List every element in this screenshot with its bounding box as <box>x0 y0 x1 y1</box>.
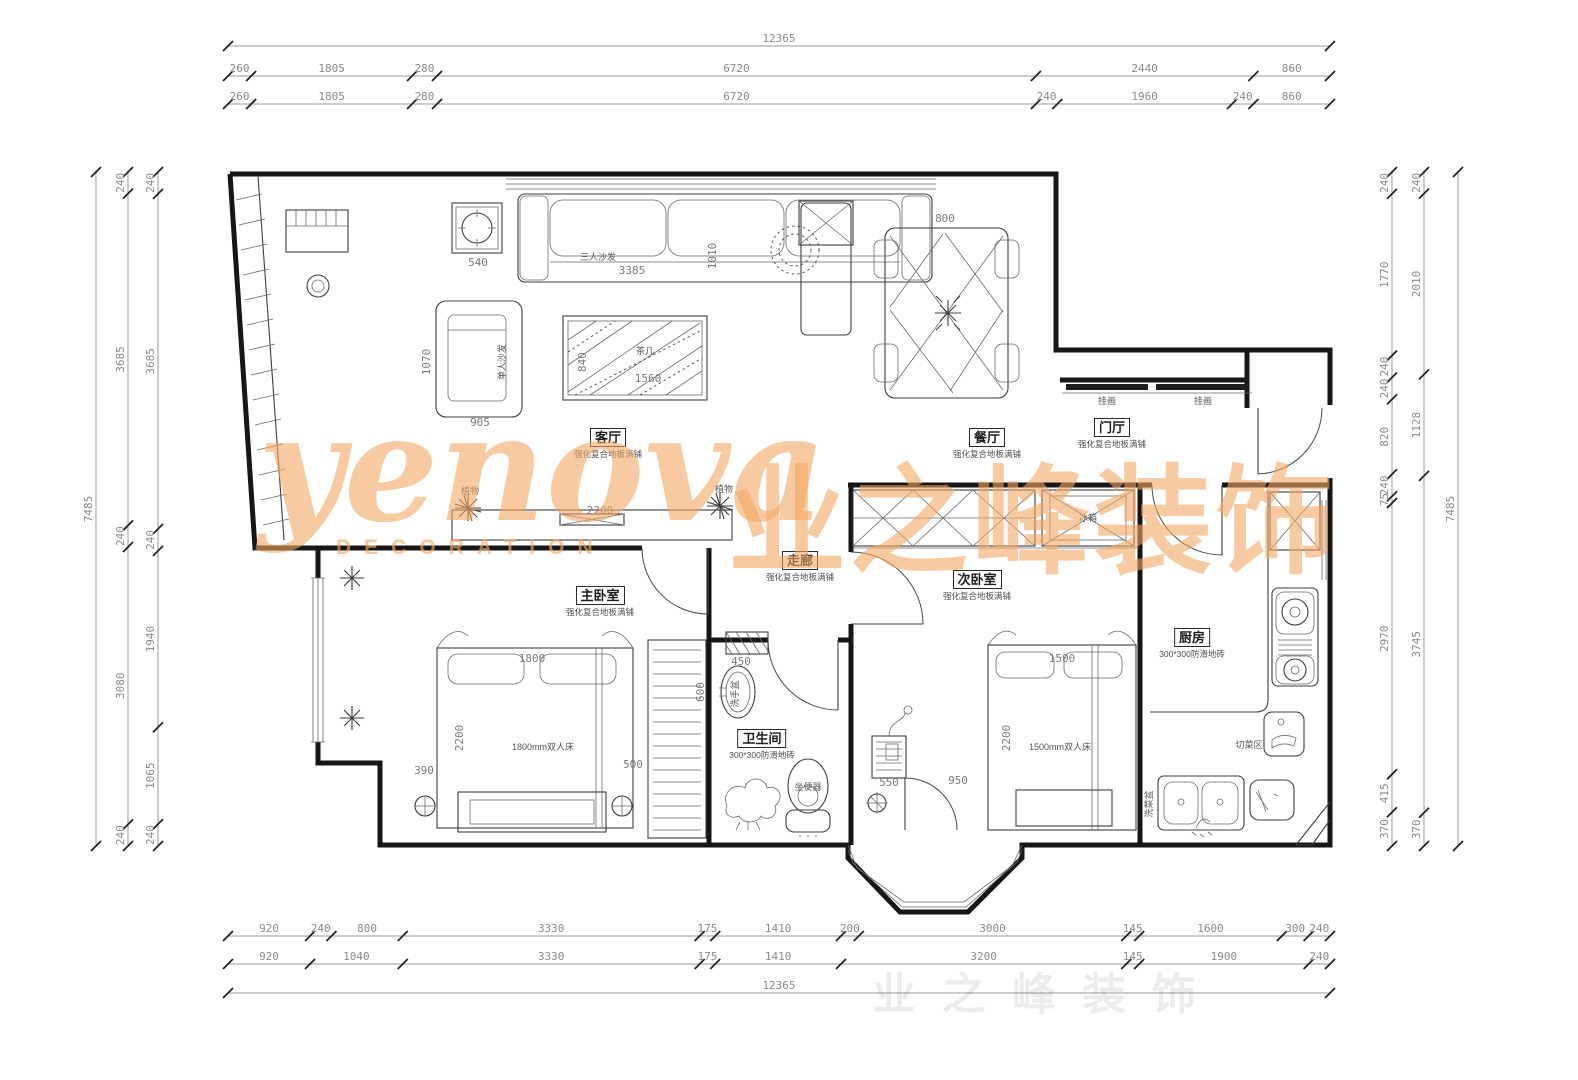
dim-chain-top-row2: 260180528067202440860 <box>223 62 1335 81</box>
plant-icon <box>340 566 364 590</box>
dimension-value: 12365 <box>762 32 795 45</box>
dimension-value: 175 <box>698 950 718 963</box>
bedside-lamp-icon <box>612 796 632 816</box>
dimension-value: 1940 <box>144 626 157 653</box>
wardrobe-depth-dim: 450 <box>731 655 751 668</box>
dimension-value: 240 <box>114 825 127 845</box>
dimension-value: 240 <box>1378 173 1391 193</box>
window-master-left <box>311 578 325 742</box>
dimension-value: 860 <box>1282 62 1302 75</box>
dim-chain-right-col3: 2401770240240820240752970415370 <box>1378 167 1397 851</box>
dimension-value: 3685 <box>144 348 157 375</box>
bathroom-door <box>768 640 838 710</box>
dimension-value: 2970 <box>1378 625 1391 652</box>
dimension-value: 3685 <box>114 346 127 373</box>
dimension-value: 145 <box>1123 950 1143 963</box>
dim-chain-top-total: 12365 <box>223 32 1335 51</box>
master-bed-label: 1800mm双人床 <box>512 741 574 752</box>
dimension-value: 1040 <box>343 950 370 963</box>
console-table-icon <box>799 201 853 335</box>
dimension-value: 1600 <box>1197 922 1224 935</box>
dimension-value: 3000 <box>979 922 1006 935</box>
dimension-value: 2440 <box>1131 62 1158 75</box>
dimension-value: 370 <box>1378 819 1391 839</box>
hang-picture-label: 挂画 <box>1194 395 1212 406</box>
dim-chain-bottom-row2: 92010403330175141032001451900240 <box>223 950 1335 969</box>
master-bed-length-dim: 2200 <box>453 725 466 752</box>
dimension-value: 820 <box>1378 427 1391 447</box>
plant-icon <box>340 706 364 730</box>
dimension-value: 240 <box>114 173 127 193</box>
room-label-living: 客厅 强化复合地板满铺 <box>574 428 642 460</box>
room-label-corridor: 走廊 强化复合地板满铺 <box>766 551 834 583</box>
dimension-value: 1805 <box>318 90 345 103</box>
dimension-value: 1410 <box>765 922 792 935</box>
shower-plant-icon <box>726 779 780 830</box>
master-right-dim: 500 <box>623 758 643 771</box>
master-left-dim: 390 <box>414 764 434 777</box>
room-label-bath: 卫生间 300*300防滑地砖 <box>729 729 795 761</box>
dimension-value: 175 <box>698 922 718 935</box>
dimension-value: 300 <box>1285 922 1305 935</box>
dimension-value: 240 <box>1378 379 1391 399</box>
dimension-value: 240 <box>311 922 331 935</box>
second-bedroom-door <box>851 552 923 624</box>
plant-label: 植物 <box>715 483 733 494</box>
sofa1-width-dim: 905 <box>470 416 490 429</box>
master-door <box>642 548 708 614</box>
kitchen-counter-icon <box>1150 490 1320 712</box>
dimension-value: 6720 <box>723 62 750 75</box>
window-living-top <box>506 179 936 189</box>
piano-icon <box>286 210 348 297</box>
dimension-value: 280 <box>415 62 435 75</box>
dimension-value: 7485 <box>82 496 95 523</box>
tea-table-label: 茶几 <box>636 345 654 356</box>
fridge-label: 冰箱 <box>1079 512 1097 523</box>
dim-chain-left-total: 7485 <box>82 167 101 851</box>
floorplan-stage: 12365 260180528067202440860 260180528067… <box>0 0 1578 1080</box>
room-label-second: 次卧室 强化复合地板满铺 <box>943 570 1011 602</box>
bedside-lamp-icon <box>415 796 435 816</box>
room-label-entry: 门厅 强化复合地板满铺 <box>1078 418 1146 450</box>
dimension-value: 800 <box>357 922 377 935</box>
dining-table-dim: 800 <box>935 212 955 225</box>
dimension-value: 200 <box>840 922 860 935</box>
tea-table-length-dim: 1560 <box>635 372 662 385</box>
room-label-dining: 餐厅 强化复合地板满铺 <box>953 428 1021 460</box>
wardrobe-icon <box>648 640 706 838</box>
cutting-area-label: 切菜区 <box>1235 739 1262 750</box>
dimension-value: 240 <box>1378 475 1391 495</box>
bay-window <box>848 845 1022 907</box>
tea-table-width-dim: 840 <box>576 352 589 372</box>
gas-stove-icon <box>1272 588 1318 686</box>
dimension-value: 3200 <box>970 950 997 963</box>
wardrobe-width-dim: 600 <box>694 682 707 702</box>
dim-chain-right-total: 7485 <box>1444 167 1463 851</box>
room-label-kitchen: 厨房 300*300防滑地砖 <box>1159 628 1225 660</box>
washbasin-label: 洗手盆 <box>729 680 740 707</box>
dimension-value: 240 <box>1410 173 1423 193</box>
side-table-dim: 540 <box>468 256 488 269</box>
dimension-value: 6720 <box>723 90 750 103</box>
dim-chain-top-row3: 260180528067202401960240860 <box>223 90 1335 109</box>
dimension-value: 3745 <box>1410 631 1423 658</box>
dim-chain-left-col2: 24036852403080240 <box>114 167 133 851</box>
dimension-value: 1900 <box>1211 950 1238 963</box>
dimension-value: 280 <box>415 90 435 103</box>
second-bed-label: 1500mm双人床 <box>1029 741 1091 752</box>
dimension-value: 3330 <box>538 922 565 935</box>
single-sofa-icon <box>436 301 522 417</box>
cutting-board-icon <box>1264 712 1304 756</box>
dimension-value: 240 <box>1037 90 1057 103</box>
dim-chain-bottom-row1: 9202408003330175141020030001451600300240 <box>223 922 1335 941</box>
dimension-value: 920 <box>259 950 279 963</box>
entry-door <box>1258 408 1322 474</box>
hang-picture-label: 挂画 <box>1098 395 1116 406</box>
dimension-value: 415 <box>1378 783 1391 803</box>
toilet-label: 坐便器 <box>794 781 821 792</box>
sofa3-label: 三人沙发 <box>580 251 616 262</box>
dimension-value: 1770 <box>1378 261 1391 288</box>
dimension-value: 240 <box>1378 357 1391 377</box>
dimension-value: 240 <box>1233 90 1253 103</box>
kitchen-sink-icon <box>1158 776 1244 837</box>
kitchen-door <box>1152 485 1222 555</box>
sofa-depth-dim: 1010 <box>706 243 719 270</box>
dimension-value: 1805 <box>318 62 345 75</box>
hall-cabinet-icon <box>853 490 1035 546</box>
dimension-value: 1065 <box>144 762 157 789</box>
picture-rail-icon <box>1062 384 1252 393</box>
dimension-value: 240 <box>1309 922 1329 935</box>
dimension-value: 3330 <box>538 950 565 963</box>
sink-label: 洗菜盆 <box>1143 790 1154 817</box>
dimension-value: 240 <box>144 173 157 193</box>
dimension-value: 3080 <box>114 672 127 699</box>
dimension-value: 1960 <box>1131 90 1158 103</box>
window-kitchen-right <box>1322 500 1326 580</box>
plant-icon <box>707 493 733 519</box>
toilet-icon <box>786 759 830 837</box>
round-rug-icon <box>771 226 819 274</box>
dimension-value: 240 <box>144 825 157 845</box>
dimension-value: 920 <box>259 922 279 935</box>
dining-table-icon <box>874 228 1019 398</box>
dimension-value: 12365 <box>762 979 795 992</box>
second-a-dim: 550 <box>879 776 899 789</box>
second-b-dim: 950 <box>948 774 968 787</box>
second-bed-length-dim: 2200 <box>1000 725 1013 752</box>
water-heater-icon <box>872 706 912 778</box>
exterior-walls <box>230 174 1330 912</box>
master-bed-bench-icon <box>458 792 606 832</box>
dimension-value: 240 <box>1309 950 1329 963</box>
dimension-value: 1410 <box>765 950 792 963</box>
second-bed-width-dim: 1500 <box>1049 652 1076 665</box>
dimension-value: 260 <box>230 62 250 75</box>
plant-icon <box>455 495 481 521</box>
dimension-value: 2010 <box>1410 271 1423 298</box>
sofa-length-dim: 3385 <box>619 264 646 277</box>
duct-hatch-icon <box>726 632 768 654</box>
room-label-master: 主卧室 强化复合地板满铺 <box>566 586 634 618</box>
dimension-value: 1128 <box>1410 412 1423 439</box>
kitchen-tray-icon <box>1250 780 1294 820</box>
dim-chain-left-col3: 240368524019401065240 <box>144 167 163 851</box>
dimension-value: 860 <box>1282 90 1302 103</box>
dimension-value: 240 <box>144 530 157 550</box>
corner-fold-icon <box>1296 802 1330 845</box>
master-bed-width-dim: 1800 <box>519 652 546 665</box>
dimension-value: 145 <box>1123 922 1143 935</box>
sofa1-depth-dim: 1070 <box>420 349 433 376</box>
dimension-value: 240 <box>114 526 127 546</box>
three-seat-sofa-icon <box>518 194 932 282</box>
dimension-value: 260 <box>230 90 250 103</box>
tv-wall-dim: 2200 <box>587 504 614 517</box>
dimension-value: 75 <box>1378 493 1391 506</box>
dimension-value: 7485 <box>1444 496 1457 523</box>
sofa1-label: 单人沙发 <box>496 344 507 380</box>
dimension-value: 370 <box>1410 819 1423 839</box>
plant-label: 植物 <box>461 485 479 496</box>
dim-chain-bottom-total: 12365 <box>223 979 1335 998</box>
side-table-icon <box>452 203 502 253</box>
floorplan-drawing: 12365 260180528067202440860 260180528067… <box>0 0 1578 1080</box>
dim-chain-right-col2: 240201011283745370 <box>1410 167 1429 851</box>
floor-drain-icon <box>866 792 888 814</box>
